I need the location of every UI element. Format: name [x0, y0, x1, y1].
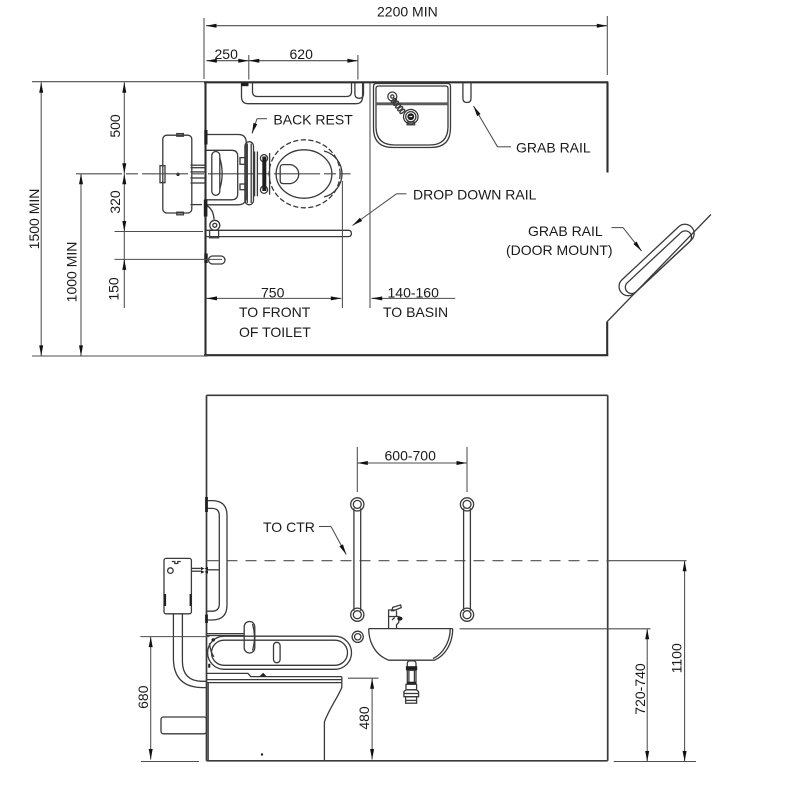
- svg-text:500: 500: [107, 114, 123, 138]
- svg-text:720-740: 720-740: [632, 663, 648, 715]
- svg-text:1000 MIN: 1000 MIN: [64, 242, 80, 303]
- svg-text:480: 480: [356, 706, 372, 730]
- svg-text:OF TOILET: OF TOILET: [239, 324, 311, 340]
- svg-text:(DOOR MOUNT): (DOOR MOUNT): [506, 242, 613, 258]
- svg-text:DROP DOWN RAIL: DROP DOWN RAIL: [413, 187, 537, 203]
- svg-text:150: 150: [106, 277, 122, 301]
- svg-text:620: 620: [290, 46, 314, 62]
- svg-text:GRAB RAIL: GRAB RAIL: [528, 223, 603, 239]
- svg-text:1500 MIN: 1500 MIN: [26, 189, 42, 250]
- svg-text:320: 320: [107, 190, 123, 214]
- svg-text:TO BASIN: TO BASIN: [383, 304, 448, 320]
- svg-text:2200 MIN: 2200 MIN: [377, 4, 438, 20]
- svg-text:600-700: 600-700: [385, 448, 437, 464]
- svg-text:TO CTR: TO CTR: [263, 519, 315, 535]
- svg-text:TO FRONT: TO FRONT: [239, 304, 311, 320]
- svg-text:680: 680: [135, 685, 151, 709]
- svg-text:BACK REST: BACK REST: [273, 112, 353, 128]
- svg-text:GRAB RAIL: GRAB RAIL: [516, 140, 591, 156]
- svg-text:1100: 1100: [669, 643, 685, 673]
- svg-text:250: 250: [215, 46, 239, 62]
